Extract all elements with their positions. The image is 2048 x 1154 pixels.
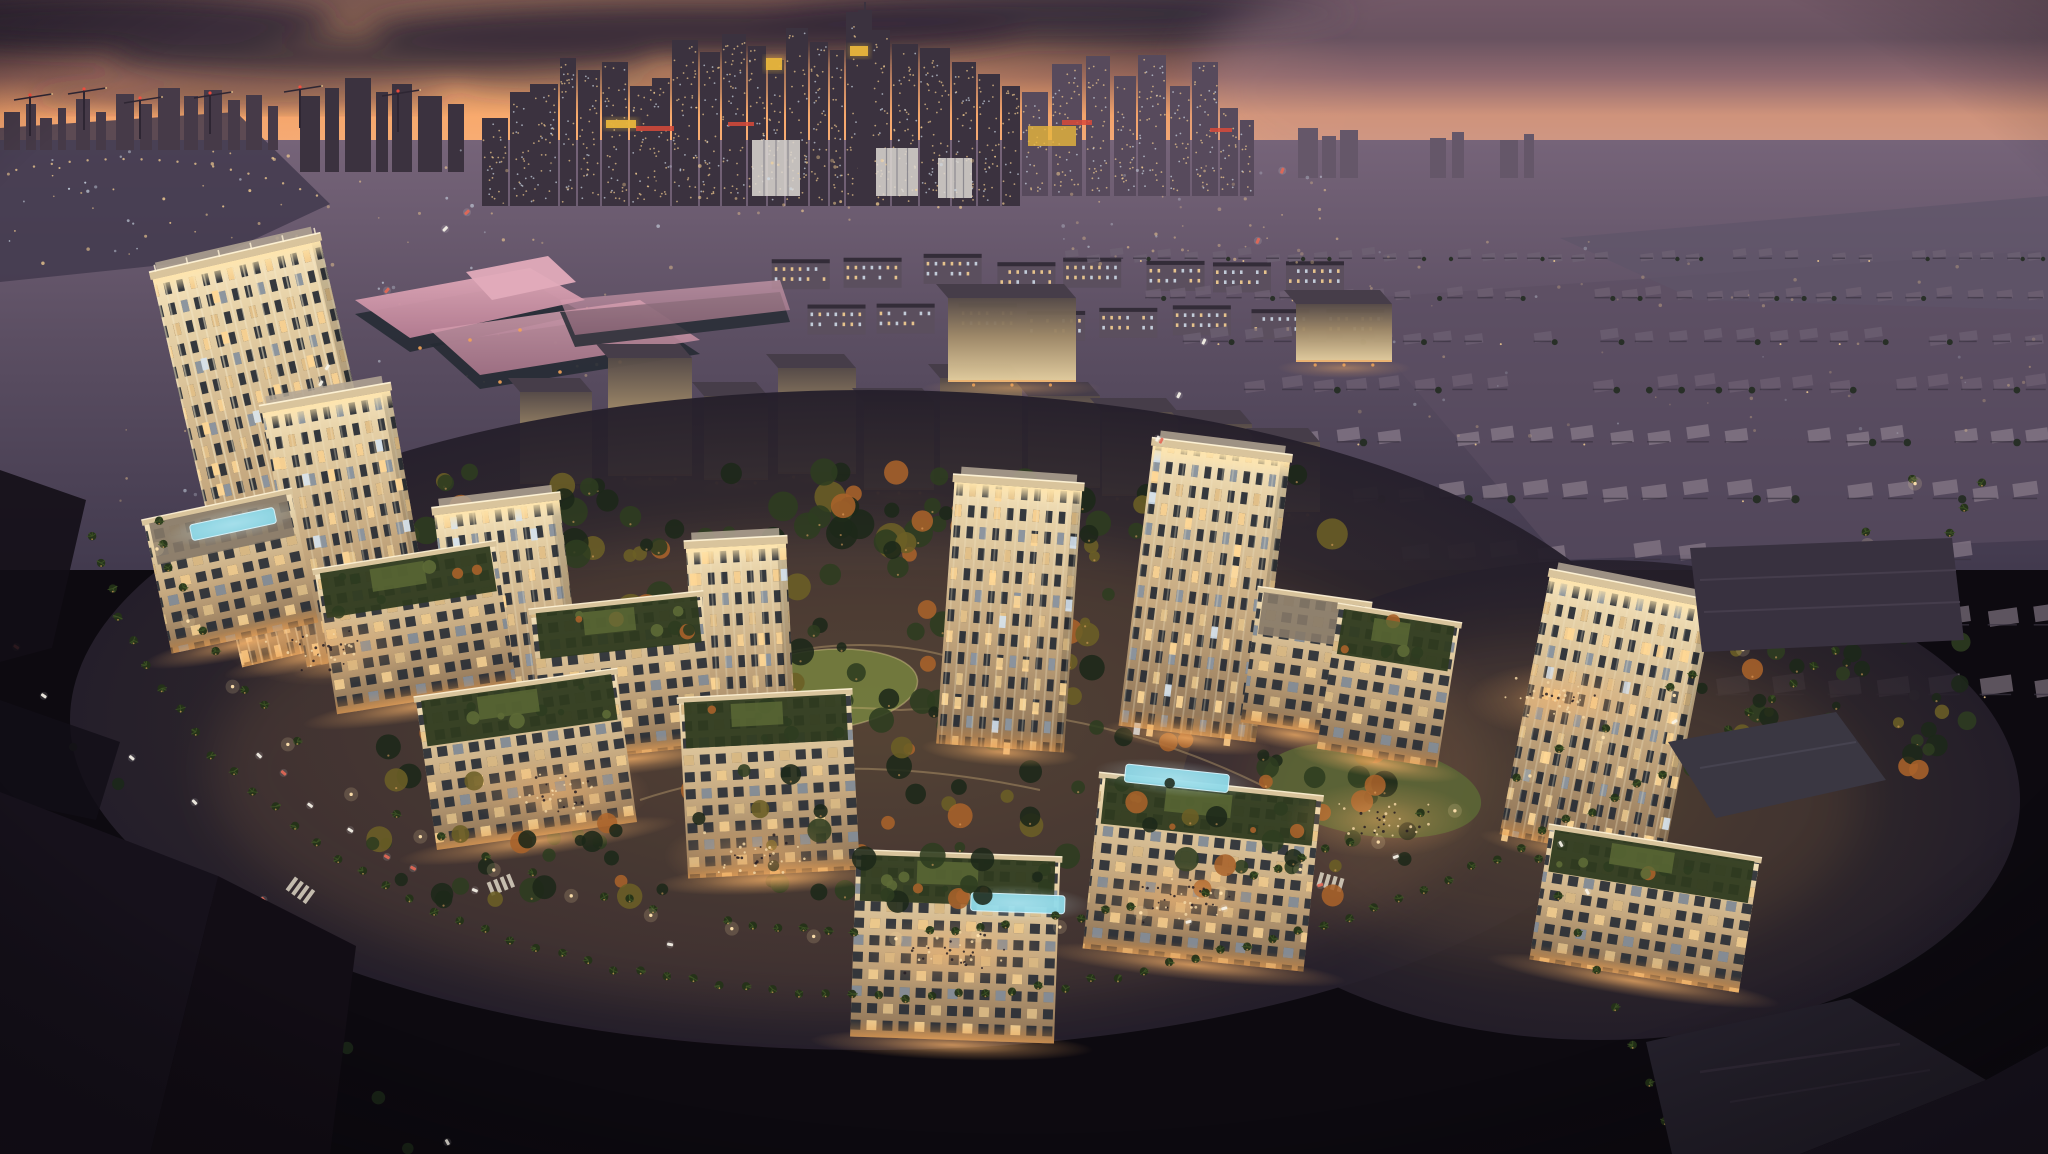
vignette (0, 0, 2048, 1154)
rendering-canvas (0, 0, 2048, 1154)
masterplan-aerial-rendering (0, 0, 2048, 1154)
